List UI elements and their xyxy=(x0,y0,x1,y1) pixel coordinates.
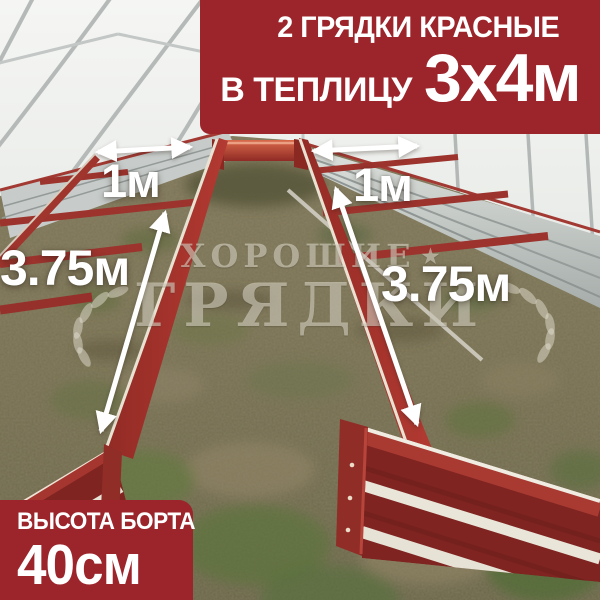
greenhouse-fit-text: В ТЕПЛИЦУ xyxy=(220,71,412,110)
board-height-label: ВЫСОТА БОРТА xyxy=(17,508,182,536)
board-height-banner: ВЫСОТА БОРТА 40см xyxy=(0,500,193,600)
product-title: 2 ГРЯДКИ КРАСНЫЕ xyxy=(208,11,592,45)
label-bed-length-left: 3.75м xyxy=(0,243,129,293)
product-subtitle: В ТЕПЛИЦУ 3х4м xyxy=(200,39,600,117)
label-bed-length-right: 3.75м xyxy=(381,259,510,309)
label-bed-width-left: 1м xyxy=(101,157,160,204)
label-bed-width-right: 1м xyxy=(353,161,412,208)
title-banner: 2 ГРЯДКИ КРАСНЫЕ В ТЕПЛИЦУ 3х4м xyxy=(200,0,600,134)
greenhouse-size-text: 3х4м xyxy=(424,39,580,117)
product-photo-card: ХОРОШИЕ★ ГРЯДКИ xyxy=(0,0,600,600)
board-height-value: 40см xyxy=(17,536,181,594)
